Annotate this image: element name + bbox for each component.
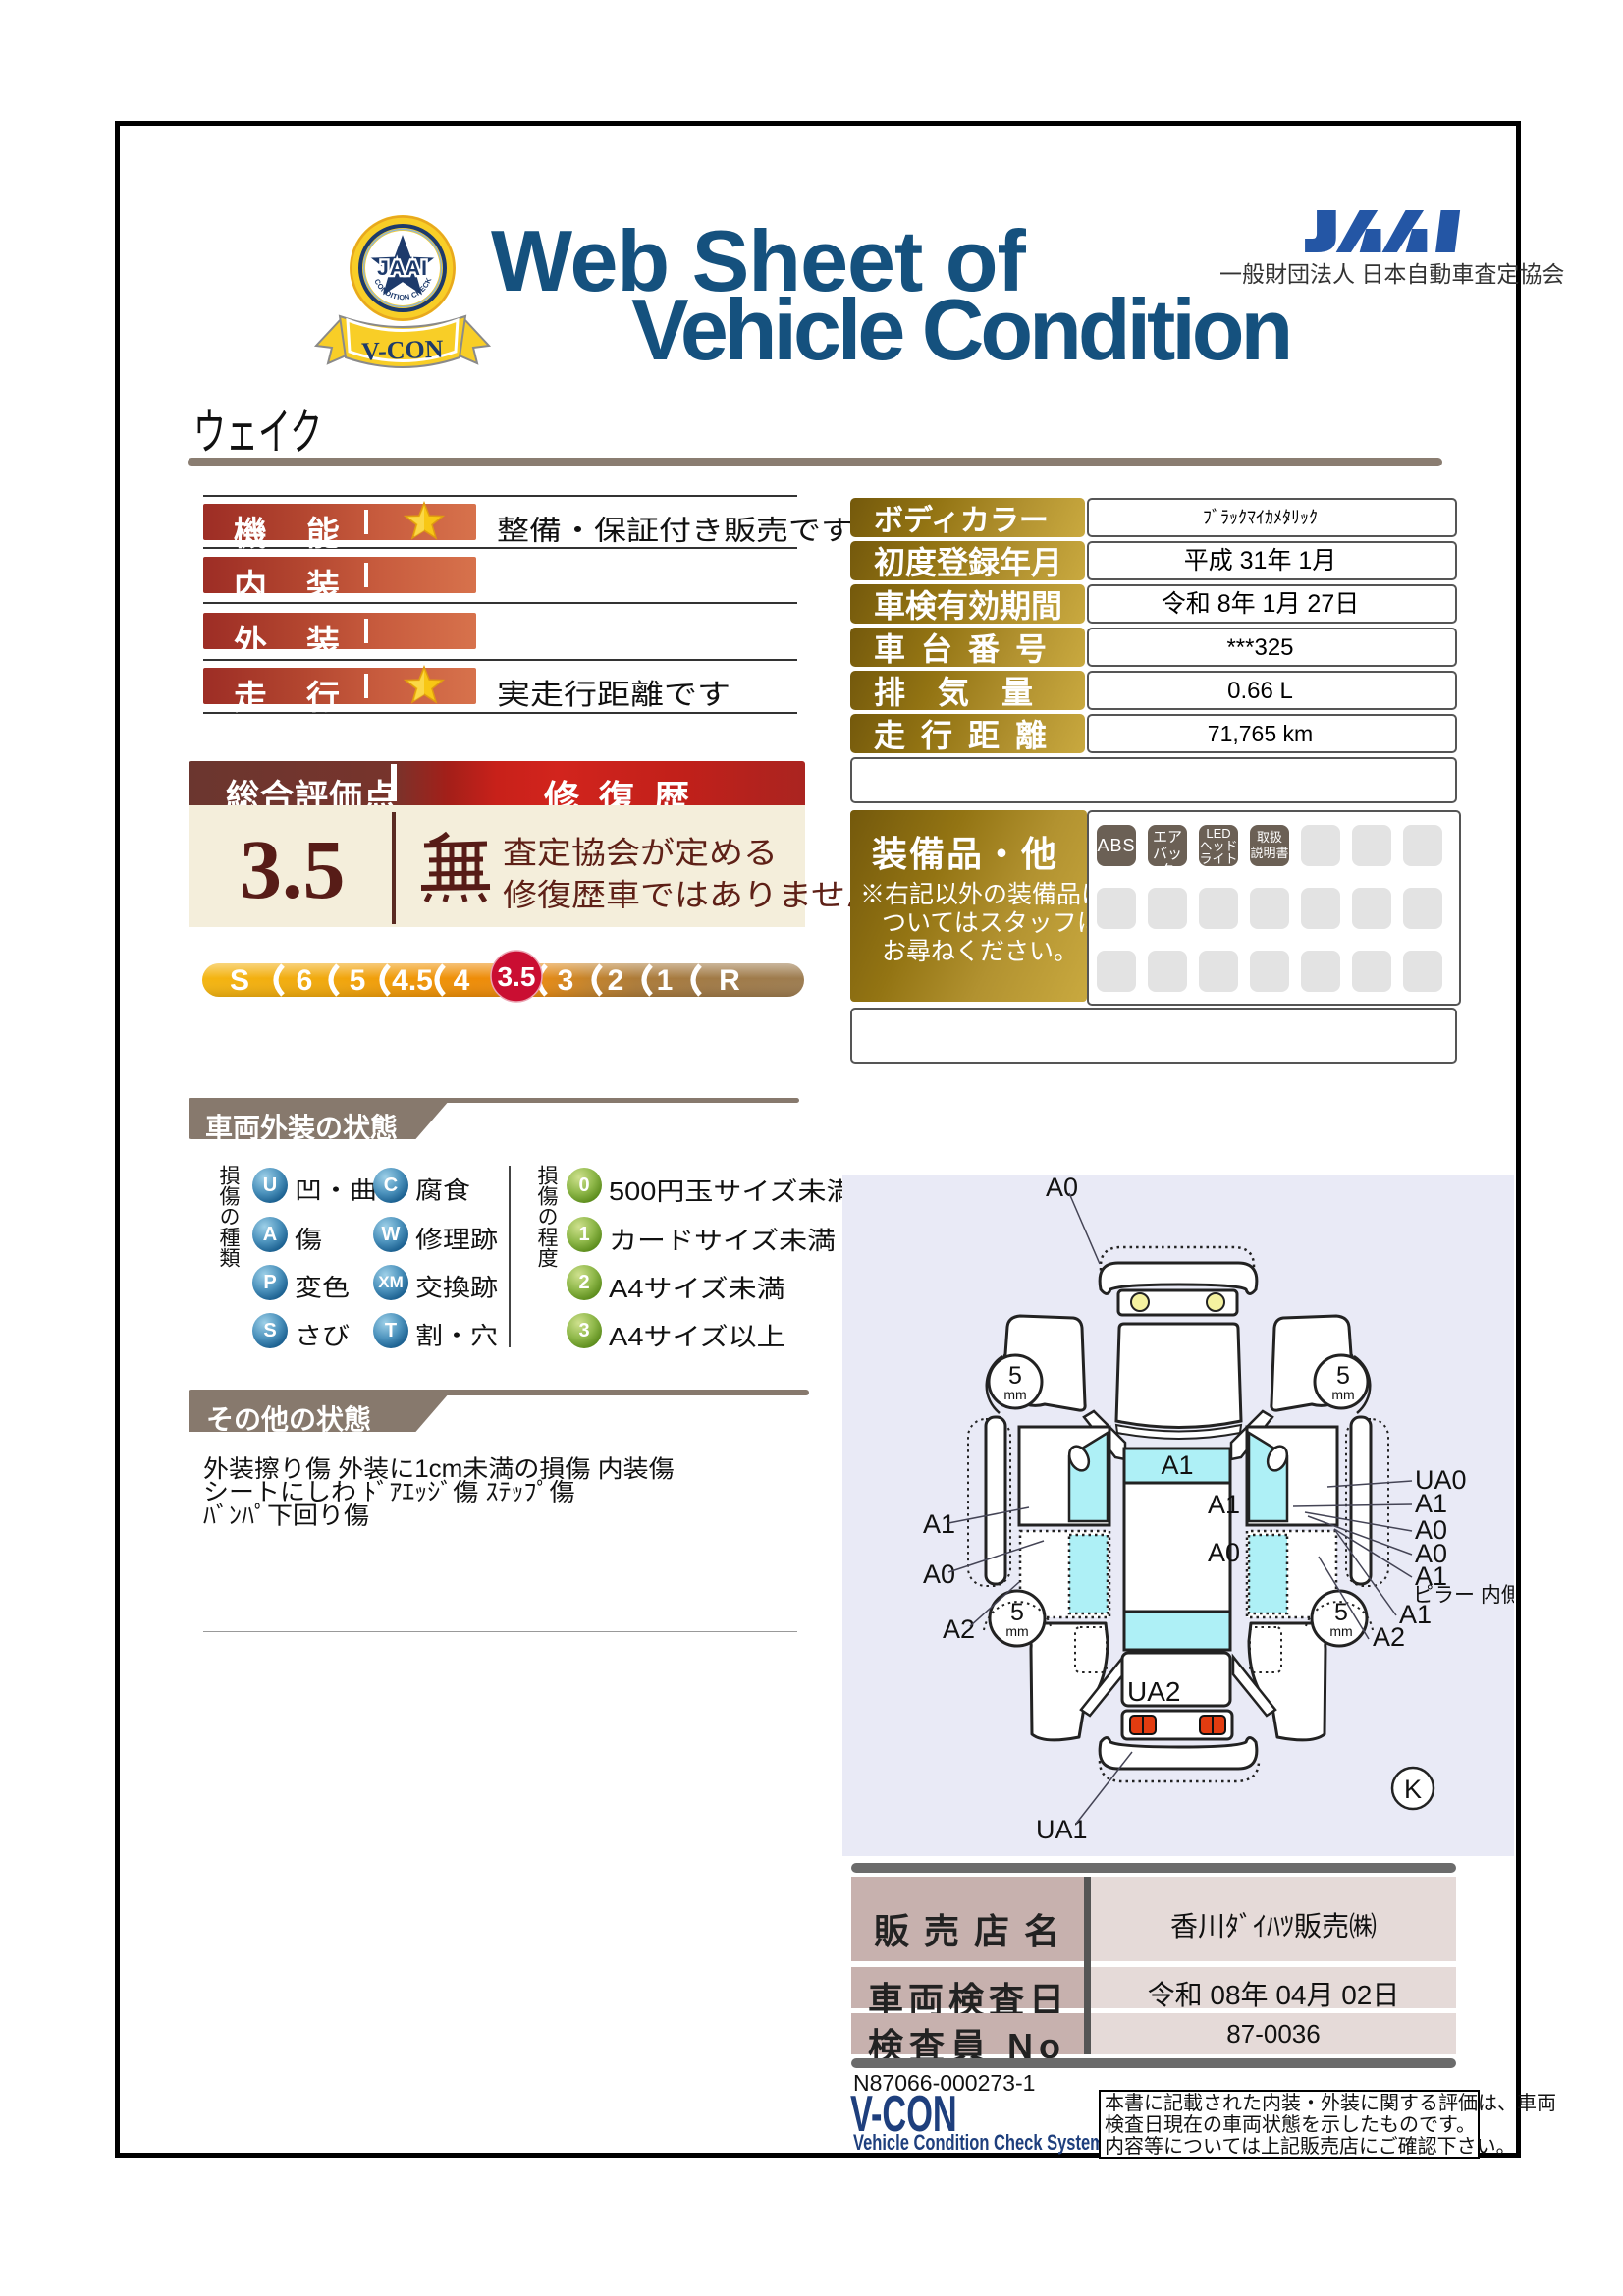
- svg-text:A0: A0: [923, 1559, 955, 1589]
- svg-text:A2: A2: [943, 1614, 975, 1644]
- svg-text:6: 6: [297, 964, 313, 997]
- svg-text:mm: mm: [1005, 1623, 1028, 1639]
- svg-text:A2: A2: [1373, 1622, 1405, 1652]
- svg-text:A1: A1: [1161, 1450, 1193, 1480]
- svg-text:S: S: [230, 964, 249, 997]
- svg-text:A0: A0: [1046, 1175, 1078, 1202]
- svg-text:3.5: 3.5: [498, 961, 536, 992]
- svg-text:A1: A1: [1208, 1490, 1240, 1519]
- svg-text:4: 4: [454, 964, 470, 997]
- svg-text:5: 5: [1008, 1362, 1022, 1390]
- svg-text:A1: A1: [923, 1509, 955, 1539]
- svg-text:A1: A1: [1415, 1489, 1447, 1518]
- svg-text:4.5: 4.5: [392, 964, 433, 997]
- svg-text:5: 5: [1336, 1362, 1350, 1390]
- svg-text:mm: mm: [1329, 1623, 1352, 1639]
- svg-text:2: 2: [608, 964, 624, 997]
- svg-text:5: 5: [350, 964, 366, 997]
- svg-text:UA2: UA2: [1127, 1676, 1180, 1707]
- svg-text:mm: mm: [1331, 1387, 1354, 1402]
- svg-text:mm: mm: [1003, 1387, 1026, 1402]
- svg-text:1: 1: [657, 964, 674, 997]
- svg-text:A0: A0: [1208, 1538, 1240, 1567]
- svg-text:ピラー 内側: ピラー 内側: [1413, 1584, 1514, 1607]
- svg-text:V-CON: V-CON: [361, 335, 444, 366]
- svg-text:3: 3: [558, 964, 574, 997]
- svg-text:R: R: [719, 964, 740, 997]
- svg-text:K: K: [1404, 1775, 1422, 1804]
- svg-text:5: 5: [1010, 1599, 1024, 1626]
- svg-text:JAAI: JAAI: [377, 257, 428, 280]
